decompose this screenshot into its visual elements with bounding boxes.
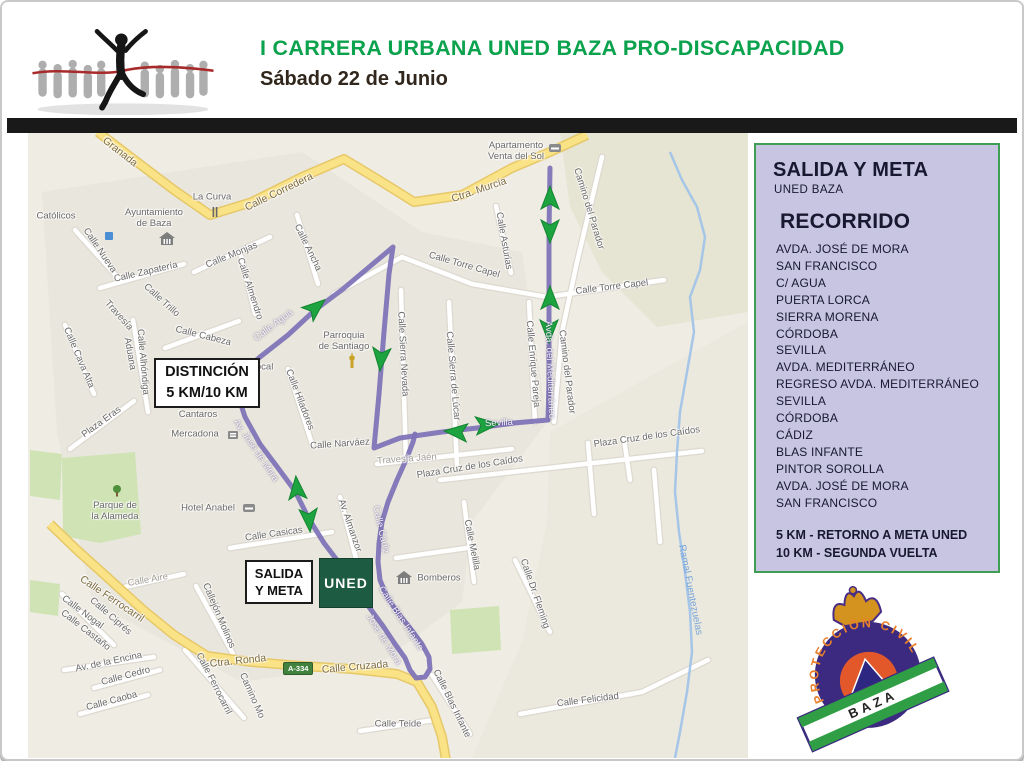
distincion-line1: DISTINCIÓN — [160, 362, 254, 383]
street-label: Ramal Fuentezuelas — [676, 544, 705, 636]
street-label: Calle Sierra Nevada — [394, 311, 409, 396]
street-label: Calle Alhóndiga — [134, 329, 151, 396]
street-label: Plaza Cruz de los Caídos — [416, 454, 524, 482]
street-label: Calle Cedro — [100, 665, 151, 689]
street-label: Av. Almanzor — [335, 498, 363, 554]
street-list-item: SAN FRANCISCO — [776, 258, 988, 275]
street-label: Calle Torre Capel — [575, 278, 649, 298]
street-label: Sevilla — [485, 418, 514, 430]
street-list-item: BLAS INFANTE — [776, 444, 988, 461]
runner-silhouette — [97, 31, 146, 107]
street-label: Calle Dr. Fleming — [517, 558, 551, 630]
street-label: Bomberos — [417, 574, 460, 585]
street-label: Camino del Parador — [570, 167, 605, 251]
street-list-item: PUERTA LORCA — [776, 292, 988, 309]
street-label: Av. de la Encina — [75, 651, 144, 676]
page-subtitle: Sábado 22 de Junio — [260, 68, 448, 91]
street-label: Calle Enrique Pareja — [523, 320, 541, 408]
street-label: Calle Almendro — [234, 257, 264, 322]
runner-finish-line-graphic — [14, 28, 232, 116]
street-label: Calle Melilla — [461, 519, 481, 571]
street-label: Parque de la Alameda — [91, 501, 138, 523]
street-label: Callejón Molinos — [199, 582, 236, 650]
sidebar: SALIDA Y META UNED BAZA RECORRIDO AVDA. … — [754, 143, 1000, 573]
street-label: La Curva — [193, 193, 232, 204]
street-label: Apartamento Venta del Sol — [488, 141, 544, 163]
street-label: Calle Blas Infante — [430, 668, 472, 740]
event-flyer-page: I CARRERA URBANA UNED BAZA PRO-DISCAPACI… — [0, 0, 1024, 761]
recorrido-street-list: AVDA. JOSÉ DE MORASAN FRANCISCOC/ AGUAPU… — [776, 241, 988, 512]
street-label: Travesía Jaén — [377, 452, 437, 467]
street-label: Calle Agua — [252, 308, 295, 344]
street-label: Católicos — [36, 212, 75, 223]
distincion-line2: 5 KM/10 KM — [160, 383, 254, 404]
street-label: Calle Cabeza — [174, 325, 232, 349]
salida-line1: SALIDA — [249, 565, 309, 582]
street-label: Avda. del Mediterráneo — [542, 321, 556, 419]
street-list-item: AVDA. JOSÉ DE MORA — [776, 241, 988, 258]
street-label: Calle Blas Infante — [375, 585, 425, 653]
street-label: Calle Castaño — [58, 608, 112, 653]
divider-bar — [7, 118, 1017, 133]
street-label: Calle Trillo — [141, 282, 181, 320]
street-list-item: SEVILLA — [776, 342, 988, 359]
street-label: Av. José de Mora — [230, 418, 280, 485]
street-label: Calle Nogal — [59, 594, 105, 632]
street-label: Calle Aire — [127, 572, 169, 590]
street-label: Calle Caoba — [85, 690, 138, 714]
recorrido-heading: RECORRIDO — [780, 210, 988, 234]
street-list-item: AVDA. MEDITERRÁNEO — [776, 359, 988, 376]
street-label: Plaza Eras — [80, 405, 124, 441]
street-label: Calle Narváez — [310, 437, 370, 452]
street-label: Jose de Mora — [363, 613, 403, 668]
street-label: Calle Casicas — [244, 526, 303, 545]
note-5km: 5 KM - RETORNO A META UNED — [776, 526, 988, 544]
street-label: Calle Hiladores — [282, 368, 315, 432]
street-label: Calle Monjas — [204, 241, 259, 272]
street-label: Calle Sierra de Lúcar — [443, 331, 462, 421]
street-label: Aduana — [121, 337, 137, 371]
street-label: Calle Corredera — [243, 170, 315, 213]
street-list-item: AVDA. JOSÉ DE MORA — [776, 478, 988, 495]
street-list-item: REGRESO AVDA. MEDITERRÁNEO — [776, 376, 988, 393]
salida-meta-heading: SALIDA Y META — [773, 159, 988, 182]
salida-meta-subheading: UNED BAZA — [774, 184, 988, 196]
distincion-box: DISTINCIÓN 5 KM/10 KM — [154, 358, 260, 408]
street-label: Hotel Anabel — [181, 504, 235, 515]
street-list-item: CÁDIZ — [776, 427, 988, 444]
street-label: Calle Ancha — [291, 223, 323, 273]
street-label: Calle Cádiz — [370, 505, 391, 555]
street-list-item: CÓRDOBA — [776, 410, 988, 427]
street-label: Calle Felicidad — [556, 692, 619, 710]
street-list-item: CÓRDOBA — [776, 326, 988, 343]
street-label: Calle Ferrocarril — [78, 573, 147, 625]
street-label: Granada — [100, 135, 140, 170]
street-label: Parroquia de Santiago — [319, 331, 370, 353]
street-list-item: SIERRA MORENA — [776, 309, 988, 326]
salida-meta-box: SALIDA Y META — [245, 560, 313, 604]
street-label: Camino del Parador — [555, 329, 576, 414]
proteccion-civil-logo: PROTECCIÓN CIVIL BAZA — [767, 575, 967, 760]
street-label: Calle Cava Alta — [60, 326, 95, 390]
street-label: Calle Teide — [375, 720, 422, 731]
street-label: Calle Zapatería — [113, 260, 179, 285]
salida-line2: Y META — [249, 582, 309, 599]
street-label: Calle Torre Capel — [427, 251, 500, 282]
street-label: Ayuntamiento de Baza — [125, 208, 183, 230]
street-label: Camino Mo — [236, 672, 266, 721]
note-10km: 10 KM - SEGUNDA VUELTA — [776, 544, 988, 562]
street-label: Calle Cruzada — [321, 658, 388, 676]
street-label: Calle Ferrocarril — [193, 651, 233, 716]
road-number-badge: A-334 — [283, 662, 313, 675]
page-title: I CARRERA URBANA UNED BAZA PRO-DISCAPACI… — [260, 36, 845, 61]
distance-notes: 5 KM - RETORNO A META UNED 10 KM - SEGUN… — [776, 526, 988, 562]
street-list-item: C/ AGUA — [776, 275, 988, 292]
street-list-item: PINTOR SOROLLA — [776, 461, 988, 478]
street-list-item: SAN FRANCISCO — [776, 495, 988, 512]
street-label: Ctra. Ronda — [209, 652, 267, 670]
street-label: Calle Nueva — [80, 226, 118, 275]
street-list-item: SEVILLA — [776, 393, 988, 410]
street-label: Calle Ciprés — [87, 596, 133, 638]
street-label: Travesía — [102, 299, 135, 334]
street-label: Ctra. Murcia — [450, 175, 508, 205]
street-label: Mercadona — [171, 430, 219, 441]
header: I CARRERA URBANA UNED BAZA PRO-DISCAPACI… — [2, 2, 1022, 118]
street-label: Plaza Cruz de los Caídos — [593, 425, 701, 451]
street-label: Calle Asturias — [493, 211, 514, 270]
uned-logo: UNED — [319, 558, 373, 608]
